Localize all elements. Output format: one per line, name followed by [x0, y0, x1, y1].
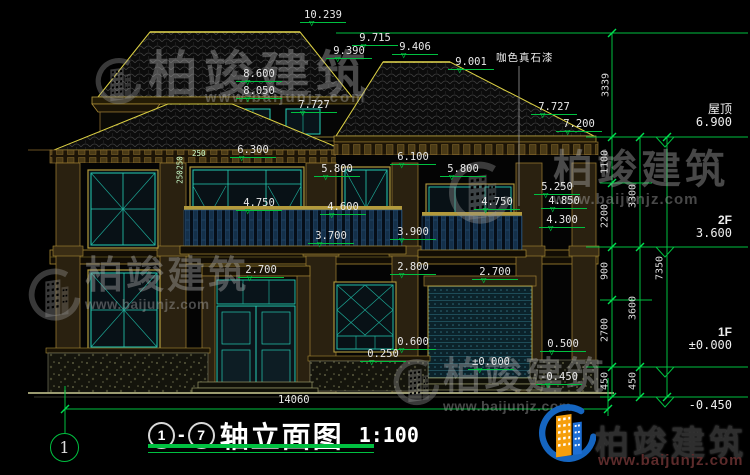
elevation-marker: 4.300	[539, 214, 585, 228]
elevation-marker: 5.250	[534, 181, 580, 195]
elevation-value: 0.600	[397, 336, 429, 348]
elevation-marker: 4.850	[541, 195, 587, 209]
elevation-value: 9.406	[399, 41, 431, 53]
cad-drawing-canvas: 柏竣建筑 www.baijunjz.com 柏竣建筑 www.baijunjz.…	[0, 0, 750, 475]
title-underline-thick	[148, 444, 374, 448]
elevation-value: 4.750	[243, 197, 275, 209]
level-label-ground: -0.450	[668, 399, 732, 412]
elevation-value: 9.390	[333, 45, 365, 57]
elevation-value: 5.800	[447, 163, 479, 175]
elevation-marker: 8.050	[236, 85, 282, 99]
elevation-marker: 4.600	[320, 201, 366, 215]
elevation-value: 9.715	[359, 32, 391, 44]
elevation-value: 7.200	[563, 118, 595, 130]
overall-width-dim: 14060	[278, 394, 310, 406]
elevation-value: 5.800	[321, 163, 353, 175]
elevation-marker: 7.727	[531, 101, 577, 115]
level-label-roof: 屋顶 6.900	[668, 103, 732, 129]
elevation-marker: 9.001	[448, 56, 494, 70]
dim-chain-value: 3600	[628, 296, 639, 320]
elevation-marker: 10.239	[300, 9, 346, 23]
elevation-value: 0.250	[367, 348, 399, 360]
elevation-marker: 7.727	[291, 99, 337, 113]
elevation-value: 10.239	[304, 9, 342, 21]
elevation-marker: 6.100	[390, 151, 436, 165]
brand-url: www.baijunjz.com	[598, 452, 743, 469]
elevation-value: -0.450	[540, 371, 578, 383]
window-1f-diamond	[334, 282, 396, 352]
elevation-marker: 2.700	[238, 264, 284, 278]
elevation-marker: 2.800	[390, 261, 436, 275]
watermark-logo-icon	[28, 256, 80, 342]
small-dim: 250	[192, 149, 206, 158]
dim-chain-value: 3300	[628, 184, 639, 208]
elevation-value: 4.850	[548, 195, 580, 207]
window-2f-left	[88, 170, 158, 248]
elevation-value: 7.727	[538, 101, 570, 113]
elevation-value: 4.600	[327, 201, 359, 213]
elevation-marker: 4.750	[474, 196, 520, 210]
elevation-marker: 2.700	[472, 266, 518, 280]
elevation-marker: 9.390	[326, 45, 372, 59]
level-label-2f: 2F 3.600	[668, 214, 732, 240]
elevation-marker: 7.200	[556, 118, 602, 132]
elevation-value: 5.250	[541, 181, 573, 193]
material-note: 咖色真石漆	[496, 50, 554, 65]
elevation-value: 6.300	[237, 144, 269, 156]
dim-chain-value: 450	[628, 372, 639, 390]
title-text: 轴立面图	[220, 414, 344, 456]
entrance-door	[202, 266, 310, 390]
title-underline-thin	[148, 452, 374, 453]
elevation-value: ±0.000	[472, 356, 510, 368]
elevation-marker: 0.250	[360, 348, 406, 362]
axis-bubble-1: 1	[50, 433, 79, 462]
elevation-marker: ±0.000	[468, 356, 514, 370]
elevation-value: 2.700	[479, 266, 511, 278]
dim-chain-value: 7350	[655, 256, 666, 280]
small-dim: 250	[176, 170, 185, 184]
level-label-1f: 1F ±0.000	[668, 326, 732, 352]
watermark-logo-icon	[393, 356, 439, 416]
elevation-value: 0.500	[547, 338, 579, 350]
elevation-marker: 6.300	[230, 144, 276, 158]
dim-chain-value: 450	[600, 372, 611, 390]
elevation-marker: 5.800	[440, 163, 486, 177]
drawing-title: 1 - 7 轴立面图 1:100	[148, 414, 419, 456]
elevation-value: 2.700	[245, 264, 277, 276]
elevation-value: 3.700	[315, 230, 347, 242]
window-1f-left	[88, 270, 160, 350]
elevation-marker: 5.800	[314, 163, 360, 177]
elevation-marker: 3.900	[390, 226, 436, 240]
dim-chain-value: 900	[600, 262, 611, 280]
dim-chain-value: 2200	[600, 204, 611, 228]
elevation-marker: 0.500	[540, 338, 586, 352]
elevation-value: 4.300	[546, 214, 578, 226]
elevation-value: 7.727	[298, 99, 330, 111]
brand-logo-icon	[538, 402, 596, 474]
elevation-value: 4.750	[481, 196, 513, 208]
axis-number: 1	[59, 438, 69, 457]
elevation-value: 8.050	[243, 85, 275, 97]
watermark-logo-icon	[95, 52, 141, 118]
elevation-value: 8.600	[243, 68, 275, 80]
elevation-value: 2.800	[397, 261, 429, 273]
elevation-value: 9.001	[455, 56, 487, 68]
elevation-marker: 4.750	[236, 197, 282, 211]
dim-chain-value: 1100	[600, 150, 611, 174]
dim-chain-value: 2700	[600, 318, 611, 342]
elevation-marker: 9.406	[392, 41, 438, 55]
elevation-value: 3.900	[397, 226, 429, 238]
balcony-main	[180, 206, 406, 254]
elevation-value: 6.100	[397, 151, 429, 163]
elevation-marker: -0.450	[536, 371, 582, 385]
dim-chain-value: 3339	[601, 73, 612, 97]
elevation-marker: 8.600	[236, 68, 282, 82]
small-dim: 250	[176, 156, 185, 170]
elevation-marker: 3.700	[308, 230, 354, 244]
